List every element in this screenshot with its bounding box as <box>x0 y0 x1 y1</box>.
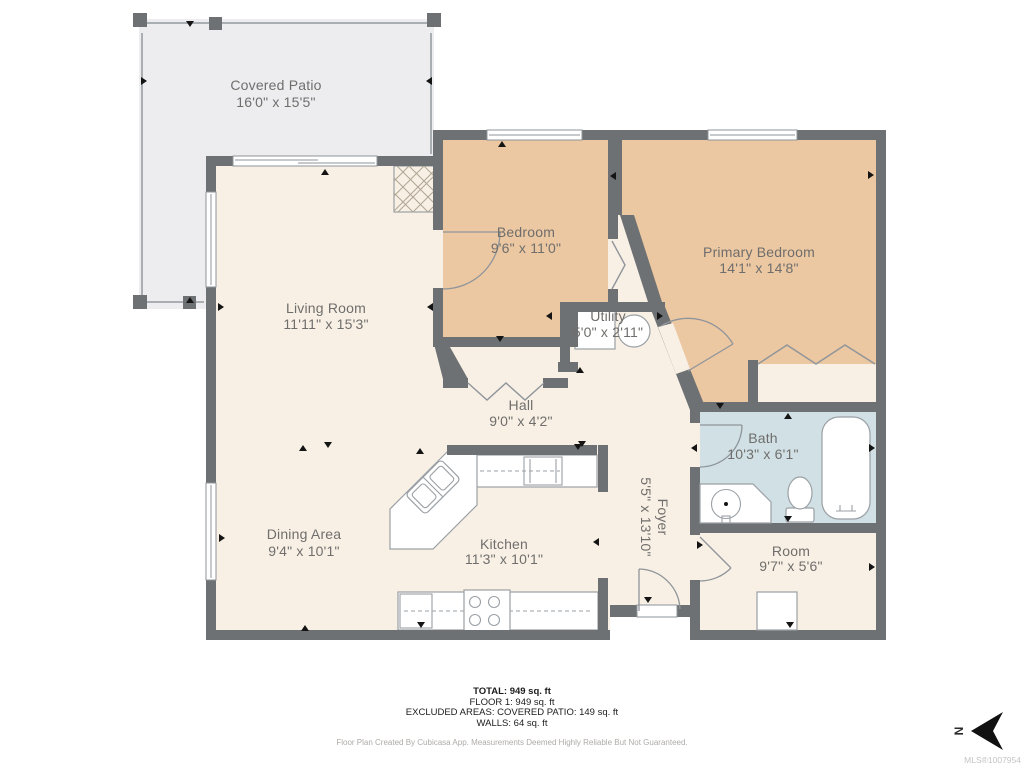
bedroom-label: Bedroom <box>497 224 555 240</box>
bedroom-dims: 9'6" x 11'0" <box>491 240 561 256</box>
bath-label: Bath <box>748 430 778 446</box>
floor-plan-page: Covered Patio 16'0" x 15'5" Living Room … <box>0 0 1024 768</box>
excluded-area: EXCLUDED AREAS: COVERED PATIO: 149 sq. f… <box>0 708 1024 719</box>
disclaimer-text: Floor Plan Created By Cubicasa App. Meas… <box>0 738 1024 749</box>
primary-bedroom-label: Primary Bedroom <box>703 244 815 260</box>
kitchen-dims: 11'3" x 10'1" <box>465 551 543 567</box>
mls-number: MLS®1007954 <box>964 755 1021 765</box>
covered-patio-label: Covered Patio <box>230 77 321 93</box>
dining-area-label: Dining Area <box>267 526 342 542</box>
hall-dims: 9'0" x 4'2" <box>489 413 552 429</box>
foyer-label: Foyer <box>655 499 671 536</box>
primary-bedroom-dims: 14'1" x 14'8" <box>719 260 798 276</box>
bath-dims: 10'3" x 6'1" <box>727 446 798 462</box>
living-room-label: Living Room <box>286 300 366 316</box>
stove-icon <box>464 590 510 632</box>
walls-area: WALLS: 64 sq. ft <box>0 719 1024 730</box>
floor-plan-drawing: Covered Patio 16'0" x 15'5" Living Room … <box>0 0 1024 768</box>
toilet-icon <box>786 477 814 522</box>
foyer-dims: 5'5" x 13'10" <box>638 477 654 556</box>
total-area: TOTAL: 949 sq. ft <box>0 687 1024 698</box>
bathtub-icon <box>822 417 870 519</box>
covered-patio-dims: 16'0" x 15'5" <box>236 94 315 110</box>
hall-label: Hall <box>509 397 534 413</box>
utility-dims: 5'0" x 2'11" <box>573 324 643 340</box>
room-dims: 9'7" x 5'6" <box>759 558 822 574</box>
area-summary: TOTAL: 949 sq. ft FLOOR 1: 949 sq. ft EX… <box>0 687 1024 749</box>
utility-label: Utility <box>590 308 626 324</box>
entry-door-opening <box>637 605 677 617</box>
patio-sliding-door <box>233 156 377 166</box>
dining-area-dims: 9'4" x 10'1" <box>268 543 339 559</box>
room-label: Room <box>772 543 810 559</box>
kitchen-label: Kitchen <box>480 536 528 552</box>
living-room-dims: 11'11" x 15'3" <box>283 316 368 332</box>
